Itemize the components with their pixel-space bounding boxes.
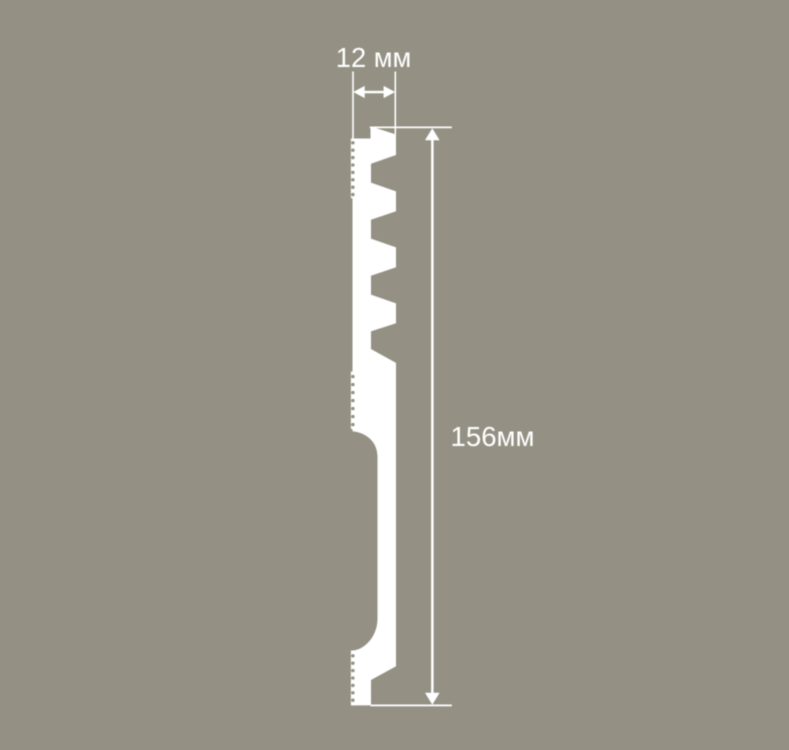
svg-text:156мм: 156мм — [451, 421, 535, 452]
svg-text:12 мм: 12 мм — [336, 42, 412, 73]
